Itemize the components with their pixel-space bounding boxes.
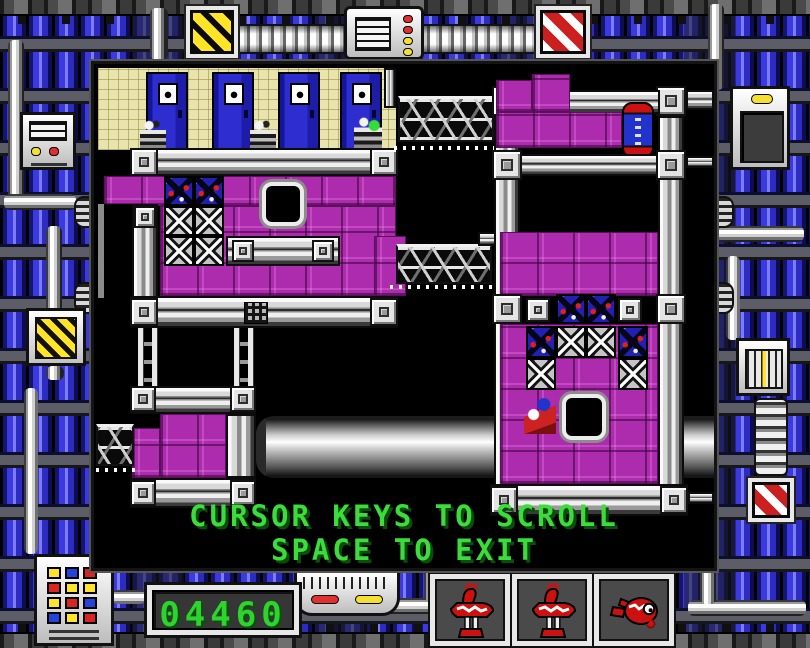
indicator-lamp-red <box>403 26 413 34</box>
robot-fallen-icon <box>607 583 663 639</box>
keypad-key <box>83 597 97 609</box>
metal-beam <box>686 156 714 168</box>
pipe <box>150 8 168 60</box>
panel-slots <box>31 159 67 166</box>
keypad-key <box>47 612 61 624</box>
support-ladder <box>138 328 158 386</box>
metal-beam <box>686 90 714 110</box>
pipe <box>46 226 62 312</box>
beam-corner-plate <box>370 148 398 176</box>
dotted-line <box>96 468 140 472</box>
vent-grille <box>716 282 734 314</box>
keypad-key <box>83 582 97 594</box>
instruction-line-1: CURSOR KEYS TO SCROLL <box>94 502 714 531</box>
magenta-block-area <box>500 232 658 296</box>
room-door <box>212 72 254 150</box>
game-screen: 04460 CURSOR KEYS TO SCROLL SPACE TO EXI… <box>0 0 810 648</box>
instruction-line-2: SPACE TO EXIT <box>94 536 714 565</box>
keypad-key <box>47 567 61 579</box>
white-cross-block <box>194 206 224 236</box>
girder-bridge <box>398 96 494 142</box>
blue-cross-block <box>526 326 556 358</box>
white-cross-block <box>618 358 648 390</box>
control-panel <box>344 6 424 60</box>
life-slot <box>594 574 674 646</box>
vent-grille <box>716 196 734 228</box>
control-screen <box>355 17 391 51</box>
magenta-block-area <box>496 112 622 148</box>
black-hole <box>562 394 606 440</box>
blue-cross-block <box>556 294 586 324</box>
beam-corner-plate <box>492 150 522 180</box>
indicator-lamp-yellow <box>403 48 413 56</box>
vent-grille <box>74 196 92 228</box>
pipe <box>4 194 76 210</box>
status-screen <box>29 121 67 141</box>
shaft <box>98 204 132 298</box>
indicator-screen <box>740 111 784 163</box>
score-display: 04460 <box>144 582 302 638</box>
white-cross-block <box>586 326 616 358</box>
beam-corner-plate <box>370 298 398 326</box>
beam-corner-plate <box>130 386 156 412</box>
lives-panel <box>430 574 690 646</box>
magenta-block-area <box>532 74 570 112</box>
keypad-key <box>65 567 79 579</box>
rivet-plate <box>526 298 550 322</box>
white-cross-block <box>556 326 586 358</box>
spring-coil <box>754 398 788 476</box>
status-lamp-yellow <box>31 147 41 156</box>
robot-sprite <box>250 120 276 150</box>
machine-capsule <box>622 102 654 158</box>
keypad-key <box>47 582 61 594</box>
light-device <box>294 570 400 616</box>
keypad-key <box>83 567 97 579</box>
robot-standing-icon <box>443 583 499 639</box>
device-ribs <box>303 577 391 589</box>
monitor-yellow <box>26 308 86 366</box>
gauge-panel <box>736 338 790 396</box>
girder-bridge <box>396 244 492 284</box>
hazard-panel-yellow <box>190 10 234 54</box>
monitor-stand <box>46 366 64 380</box>
metal-beam <box>520 154 658 176</box>
rivet-plate <box>232 240 254 262</box>
beam-corner-plate <box>230 386 256 412</box>
life-slot <box>430 574 510 646</box>
status-panel <box>20 112 76 170</box>
robot-sprite-green <box>354 116 382 150</box>
dotted-line <box>390 285 496 289</box>
blue-cross-block <box>586 294 616 324</box>
robot-standing-icon <box>525 583 581 639</box>
pipe <box>112 590 146 604</box>
score-value: 04460 <box>154 598 292 632</box>
indicator-pill-yellow <box>751 94 773 104</box>
room-door <box>278 72 320 150</box>
black-hole <box>262 182 304 226</box>
keypad-key <box>65 597 79 609</box>
magenta-block-area <box>104 176 396 206</box>
robot-sprite <box>140 120 166 150</box>
white-cross-block <box>194 236 224 266</box>
rivet-plate <box>312 240 334 262</box>
keypad-key <box>47 597 61 609</box>
pipe <box>718 226 804 242</box>
keypad-key <box>83 612 97 624</box>
hazard-panel-red-small <box>752 482 790 518</box>
metal-beam-vertical <box>384 68 396 108</box>
keypad-slots <box>49 627 99 640</box>
gauge-bars <box>745 349 783 389</box>
blue-cross-block <box>618 326 648 358</box>
indicator-lamp-yellow <box>403 37 413 45</box>
device-lamp-red <box>311 595 339 604</box>
white-cross-block <box>164 206 194 236</box>
girder-bridge <box>96 424 134 466</box>
blue-cross-block <box>194 176 224 206</box>
beam-corner-plate <box>130 148 158 176</box>
dotted-line <box>394 146 498 150</box>
white-cross-block <box>526 358 556 390</box>
metal-beam-vertical <box>226 414 256 478</box>
magenta-block-area <box>496 80 532 112</box>
indicator-panel <box>730 86 790 170</box>
rivet-plate <box>618 298 642 322</box>
life-slot <box>512 574 592 646</box>
beam-corner-plate <box>492 294 522 324</box>
monitor-screen <box>35 317 77 359</box>
pipe <box>24 388 38 554</box>
beam-corner-plate <box>656 150 686 180</box>
robot-sprite-red <box>524 398 556 434</box>
score-screen: 04460 <box>152 590 294 630</box>
beam-corner-plate <box>656 86 686 116</box>
rivet-plate <box>134 206 156 228</box>
vent-grille <box>244 302 268 324</box>
device-lamp-yellow <box>355 595 383 604</box>
indicator-lamp-red <box>403 15 413 23</box>
white-cross-block <box>164 236 194 266</box>
beam-corner-plate <box>130 298 158 326</box>
blue-cross-block <box>164 176 194 206</box>
keypad-key <box>65 582 79 594</box>
support-ladder <box>234 328 254 386</box>
status-lamp-red <box>49 147 59 156</box>
magenta-block-area <box>160 414 226 478</box>
keypad-key <box>65 612 79 624</box>
metal-beam <box>130 148 398 176</box>
beam-corner-plate <box>656 294 686 324</box>
map-viewport[interactable]: CURSOR KEYS TO SCROLL SPACE TO EXIT <box>94 64 714 568</box>
hazard-panel-red <box>540 10 586 54</box>
